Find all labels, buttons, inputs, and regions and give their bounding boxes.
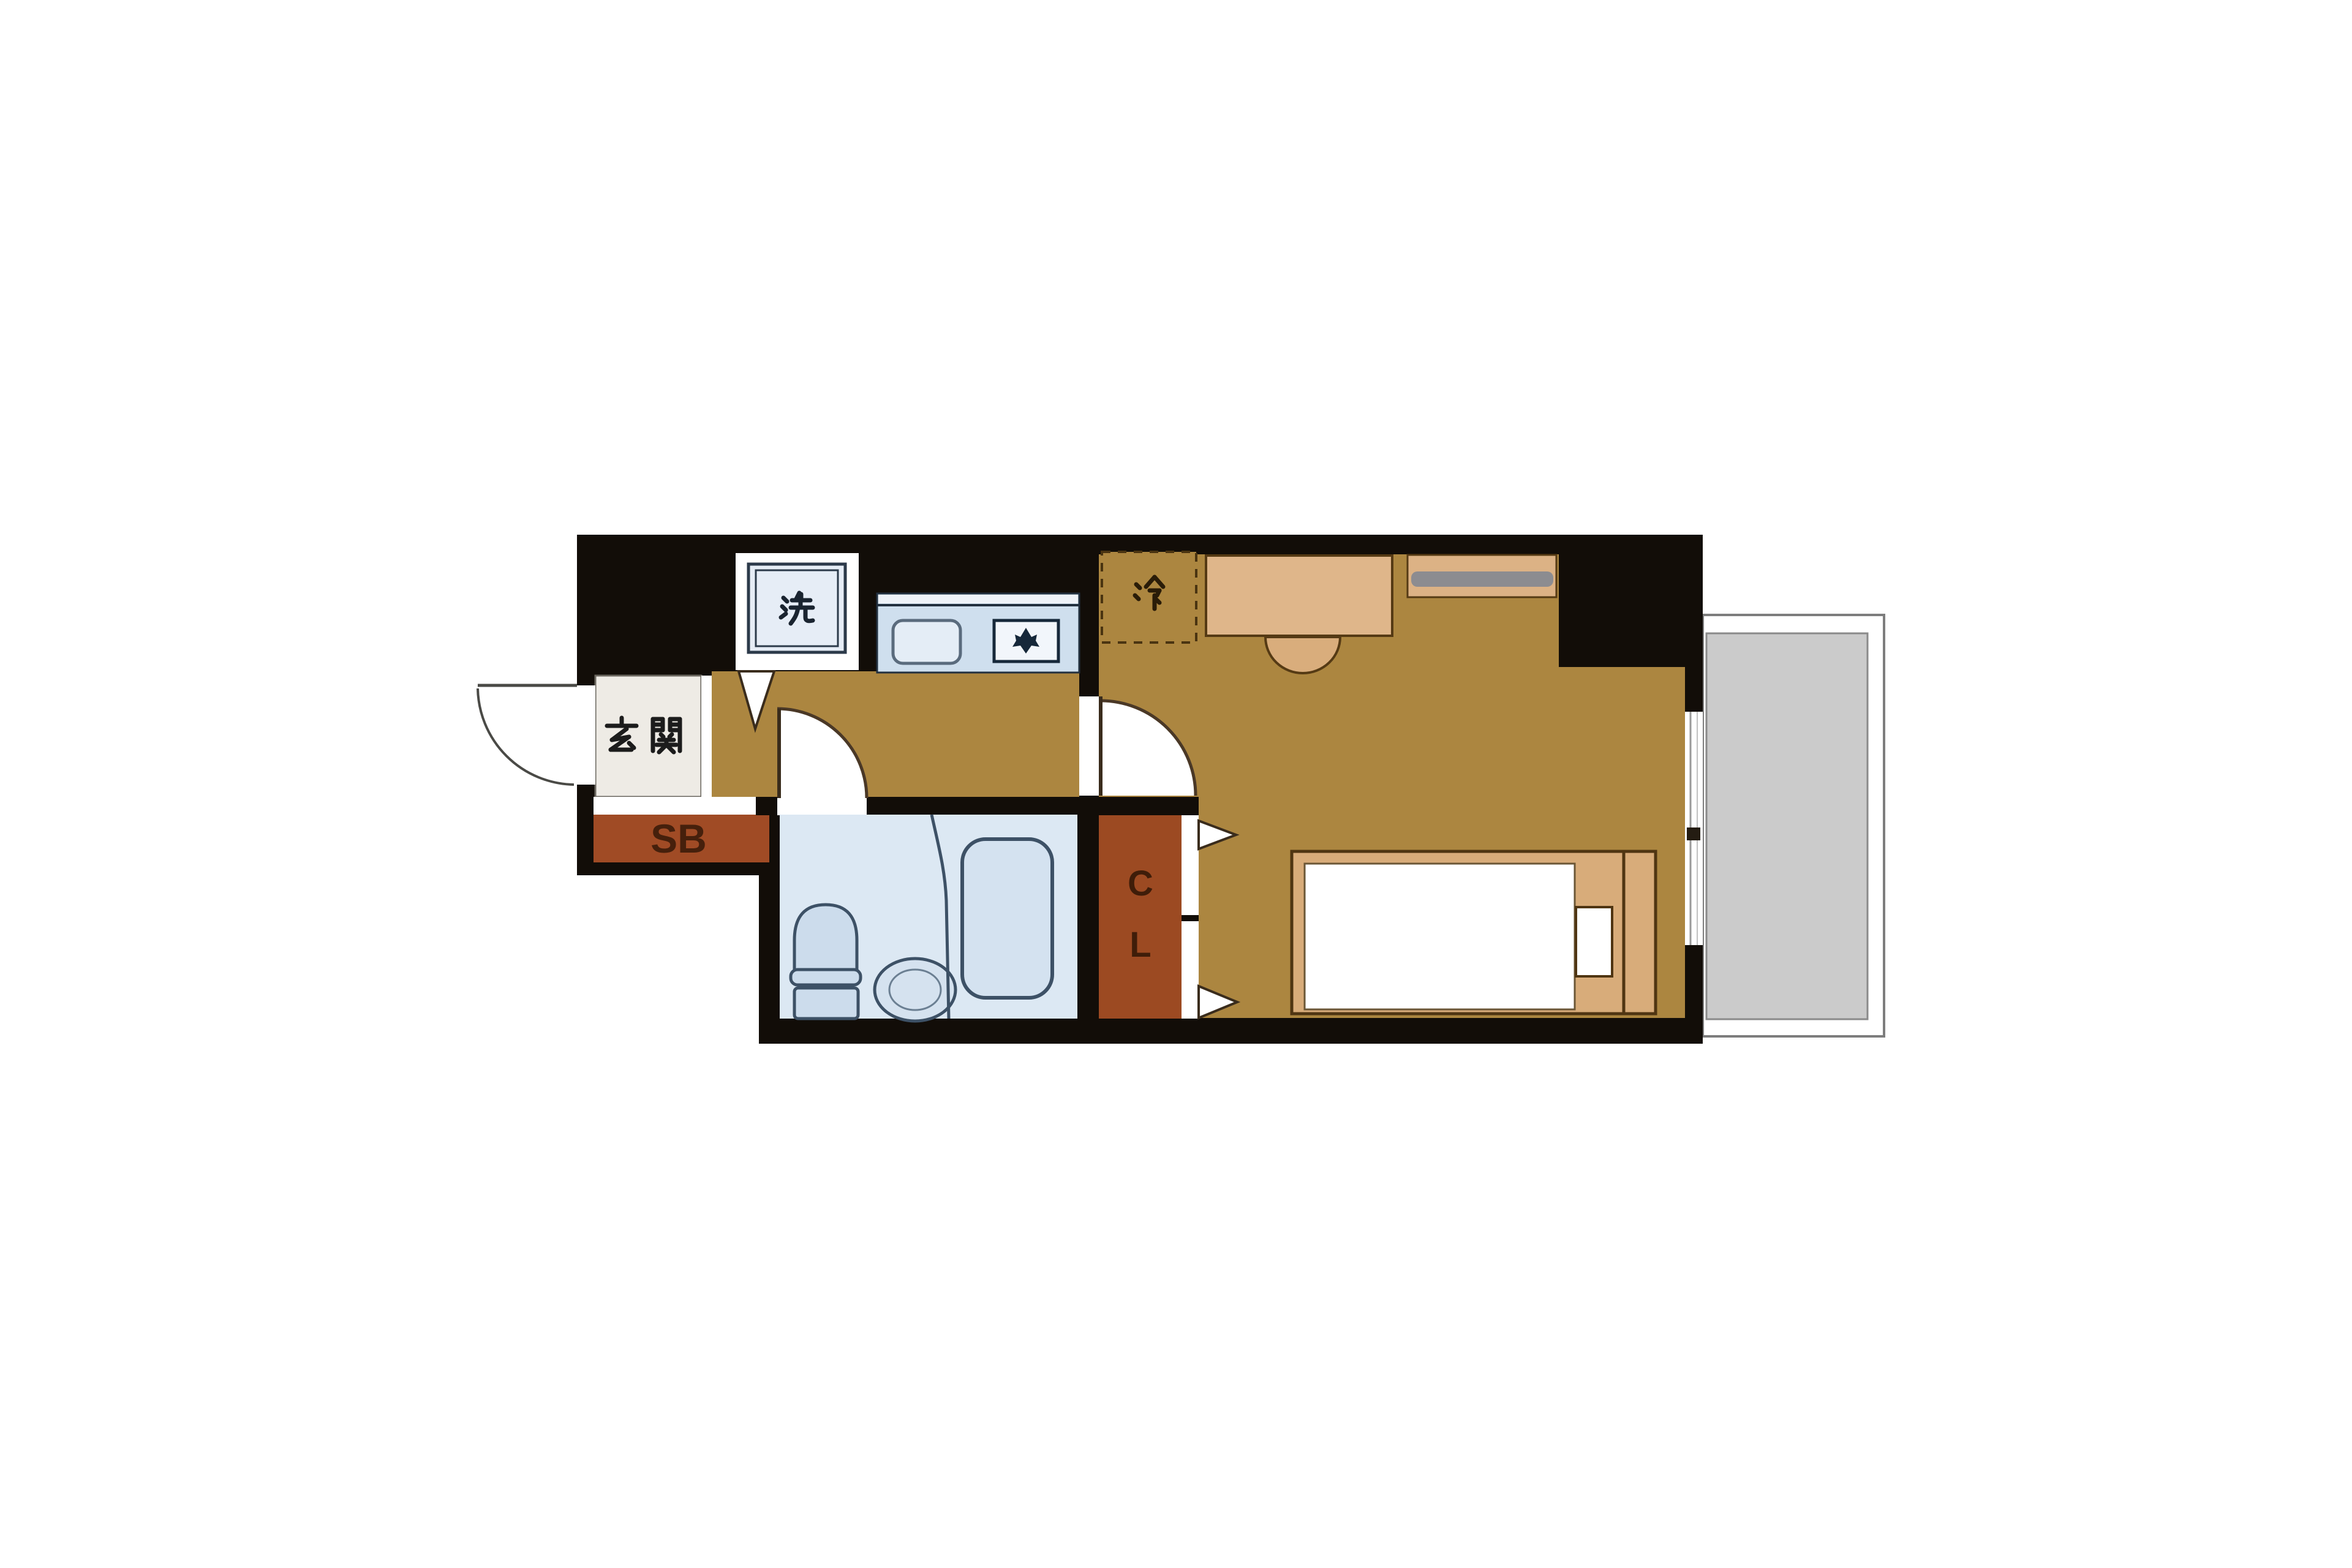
svg-text:L: L bbox=[1129, 925, 1151, 965]
svg-text:SB: SB bbox=[650, 816, 707, 861]
svg-text:C: C bbox=[1128, 864, 1153, 903]
